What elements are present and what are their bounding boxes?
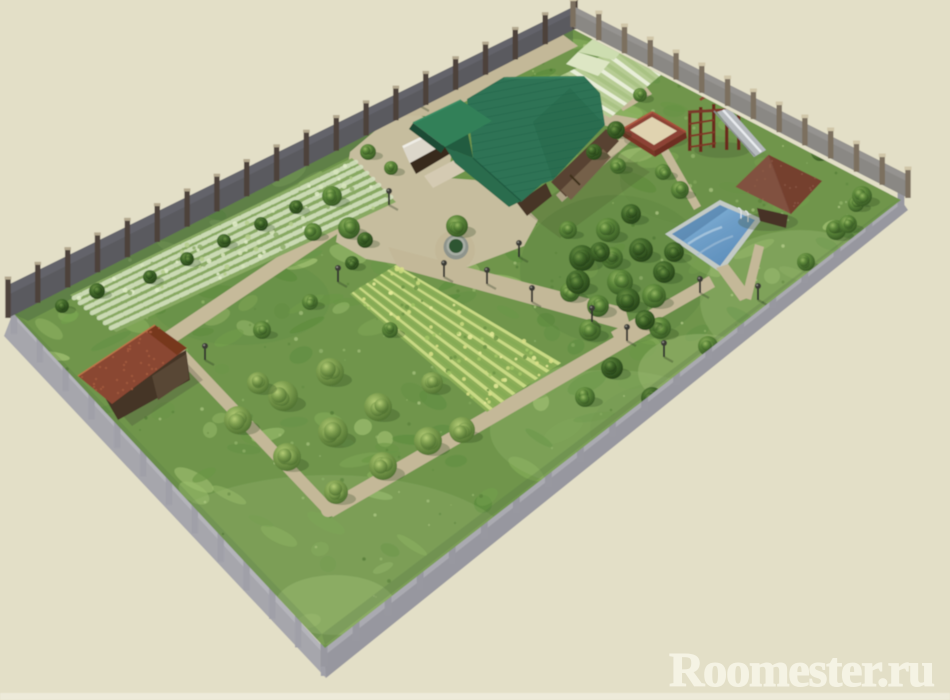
svg-text:Roomester.ru: Roomester.ru xyxy=(669,642,935,697)
